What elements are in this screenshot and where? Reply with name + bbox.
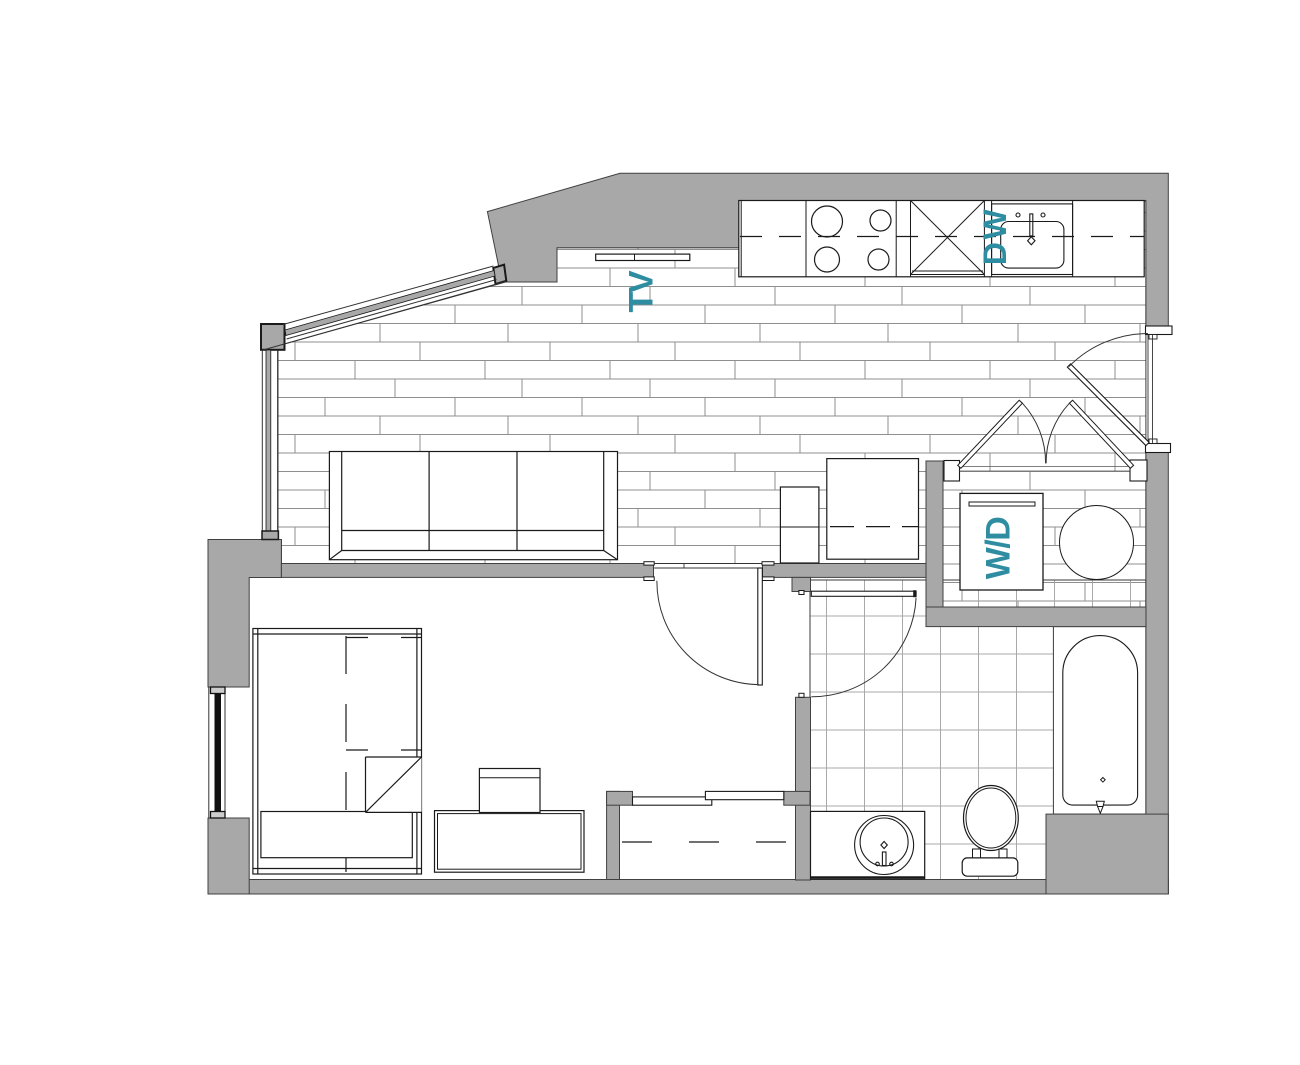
svg-text:TV: TV — [623, 270, 661, 312]
svg-text:W/D: W/D — [980, 517, 1018, 580]
svg-text:DW: DW — [977, 207, 1013, 265]
